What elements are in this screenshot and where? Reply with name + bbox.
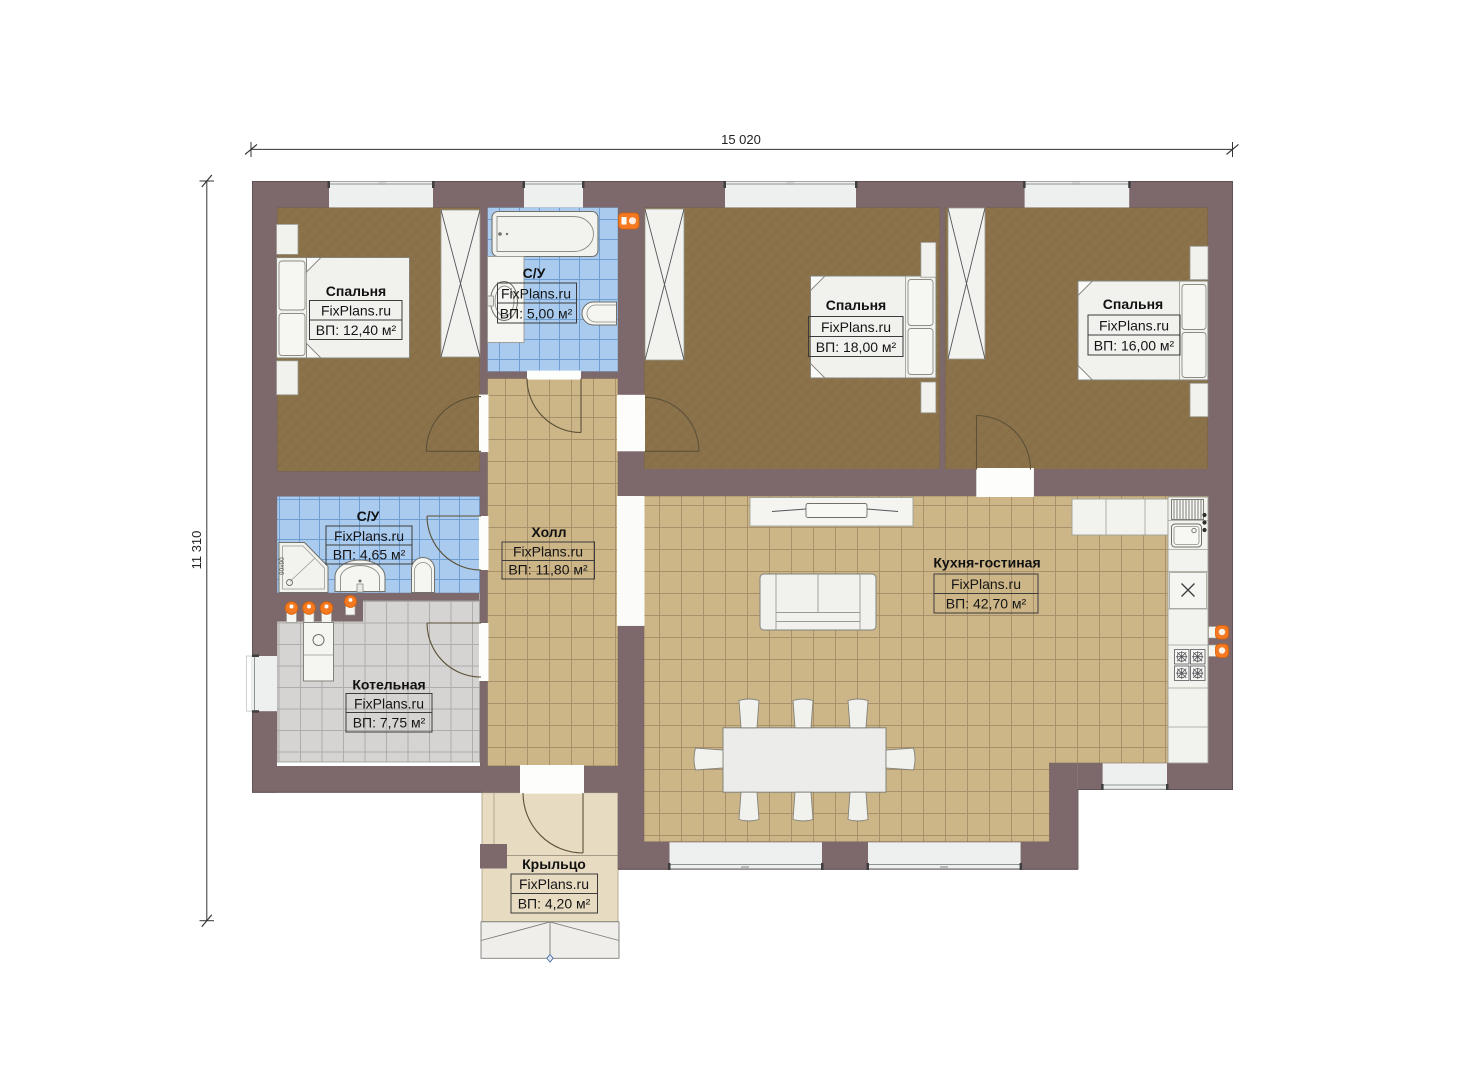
svg-text:Кухня-гостиная: Кухня-гостиная (933, 555, 1040, 571)
svg-text:С/У: С/У (357, 508, 380, 524)
svg-text:Котельная: Котельная (352, 677, 425, 693)
svg-text:FixPlans.ru: FixPlans.ru (354, 696, 424, 712)
svg-text:ВП: 42,70 м²: ВП: 42,70 м² (946, 596, 1027, 612)
svg-text:С/У: С/У (523, 265, 546, 281)
svg-text:FixPlans.ru: FixPlans.ru (334, 528, 404, 544)
svg-text:FixPlans.ru: FixPlans.ru (321, 303, 391, 319)
svg-text:ВП: 4,65 м²: ВП: 4,65 м² (333, 547, 406, 563)
svg-text:FixPlans.ru: FixPlans.ru (513, 544, 583, 560)
svg-text:90х90: 90х90 (279, 557, 286, 575)
svg-text:ВП: 7,75 м²: ВП: 7,75 м² (353, 715, 426, 731)
svg-text:11 310: 11 310 (189, 531, 204, 570)
svg-text:15 020: 15 020 (721, 132, 761, 147)
svg-text:Спальня: Спальня (826, 297, 886, 313)
svg-text:FixPlans.ru: FixPlans.ru (1099, 318, 1169, 334)
svg-text:FixPlans.ru: FixPlans.ru (821, 319, 891, 335)
svg-text:ВП: 18,00 м²: ВП: 18,00 м² (816, 339, 897, 355)
svg-text:ВП: 11,80 м²: ВП: 11,80 м² (508, 562, 588, 578)
svg-text:ВП: 16,00 м²: ВП: 16,00 м² (1094, 338, 1175, 354)
svg-text:ВП: 12,40 м²: ВП: 12,40 м² (316, 322, 397, 338)
svg-text:FixPlans.ru: FixPlans.ru (519, 876, 589, 892)
svg-text:Спальня: Спальня (326, 283, 386, 299)
svg-text:FixPlans.ru: FixPlans.ru (951, 576, 1021, 592)
svg-text:Холл: Холл (531, 524, 566, 540)
svg-text:FixPlans.ru: FixPlans.ru (501, 286, 571, 302)
svg-text:Спальня: Спальня (1103, 296, 1163, 312)
svg-text:Крыльцо: Крыльцо (522, 856, 586, 872)
svg-text:ВП: 4,20 м²: ВП: 4,20 м² (518, 896, 591, 912)
svg-text:ВП: 5,00 м²: ВП: 5,00 м² (500, 306, 573, 322)
